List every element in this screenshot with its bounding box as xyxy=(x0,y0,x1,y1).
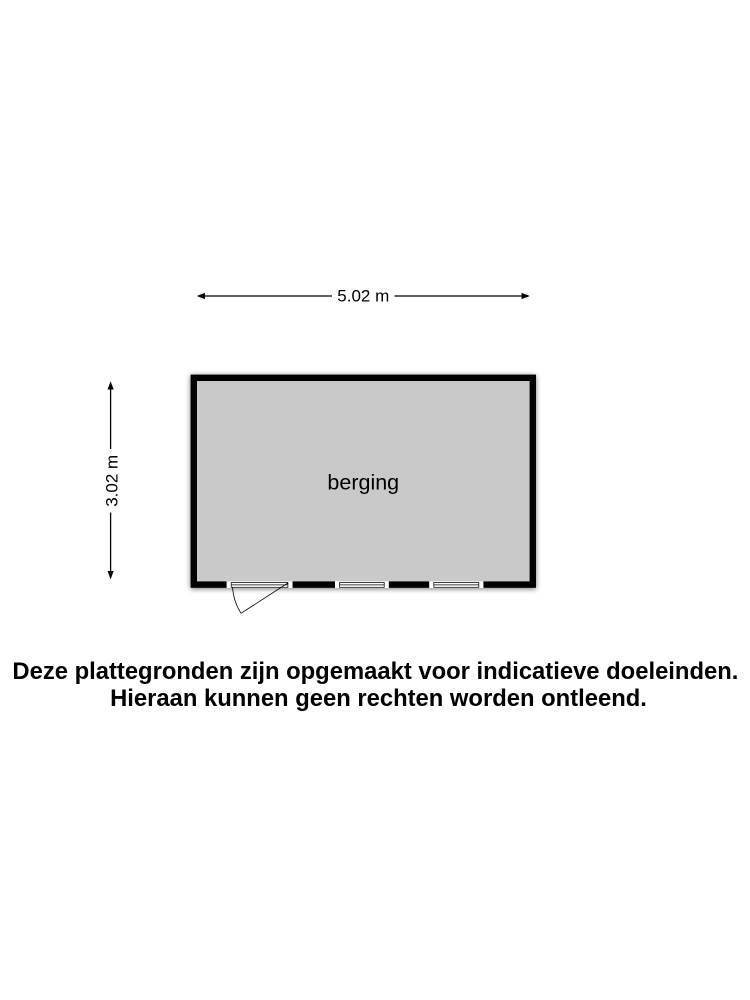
svg-text:berging: berging xyxy=(327,471,399,495)
svg-text:Deze plattegronden zijn opgema: Deze plattegronden zijn opgemaakt voor i… xyxy=(12,658,738,685)
svg-text:3.02 m: 3.02 m xyxy=(103,455,122,507)
svg-text:5.02 m: 5.02 m xyxy=(337,287,389,306)
svg-text:Hieraan kunnen geen rechten wo: Hieraan kunnen geen rechten worden ontle… xyxy=(110,685,647,712)
